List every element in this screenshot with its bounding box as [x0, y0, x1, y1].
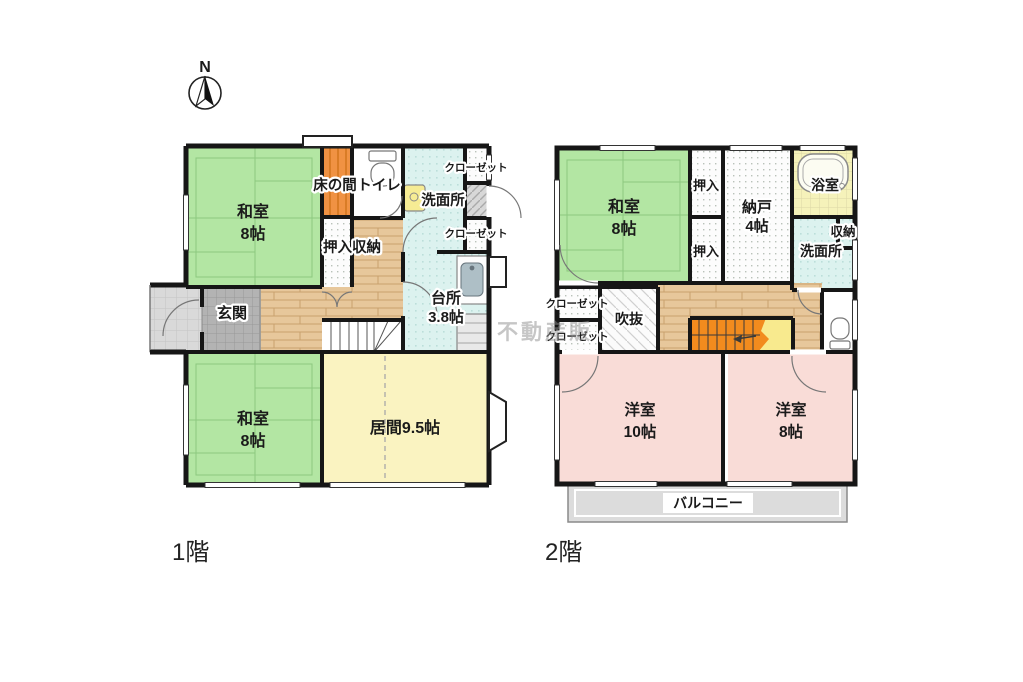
- caption-floor1: 1階: [172, 539, 209, 566]
- compass-icon: N: [189, 59, 221, 109]
- label-senmenjo-1f: 洗面所: [421, 191, 465, 209]
- label-toilet-1f: トイレ: [357, 178, 401, 194]
- label-shuno: 収納: [830, 224, 855, 239]
- floorplan-image: 和室 8帖 床の間 トイレ 洗面所 クローゼット クローゼット 押入収納 玄関 …: [0, 0, 1023, 682]
- label-balcony: バルコニー: [673, 495, 743, 511]
- label-closet-1f-mid: クローゼット: [445, 227, 508, 240]
- label-kitchen: 台所: [431, 289, 461, 307]
- compass-north-label: N: [199, 59, 211, 76]
- label-tokonoma: 床の間: [313, 176, 357, 194]
- label-yoshitsu-10: 洋室: [624, 400, 655, 419]
- label-yoshitsu-10-size: 10帖: [624, 422, 657, 441]
- label-washitsu-1f-top: 和室: [237, 202, 269, 221]
- watermark: 不動産販: [497, 320, 593, 344]
- living-bay-window: [489, 392, 506, 451]
- room-living: [322, 352, 489, 485]
- label-oshiire-1f: 押入収納: [323, 238, 381, 256]
- label-yoshitsu-8: 洋室: [775, 400, 806, 419]
- label-kitchen-size: 3.8帖: [428, 308, 464, 326]
- label-closet-2f-top: クローゼット: [546, 297, 609, 310]
- label-nando-size: 4帖: [745, 217, 768, 235]
- label-oshiire-2f-bottom: 押入: [693, 244, 719, 259]
- label-closet-1f-top: クローゼット: [445, 161, 508, 174]
- kitchen-sink: [457, 256, 488, 304]
- entrance-porch: [150, 287, 202, 352]
- toilet-fixture-2f: [830, 318, 850, 349]
- label-living: 居間9.5帖: [370, 418, 440, 437]
- label-senmenjo-2f: 洗面所: [800, 243, 842, 259]
- label-yoshitsu-8-size: 8帖: [779, 422, 804, 441]
- label-fukinuke: 吹抜: [615, 311, 644, 327]
- label-nando: 納戸: [742, 198, 772, 216]
- label-bathroom: 浴室: [811, 177, 839, 193]
- stairs-2f: [690, 318, 793, 352]
- bay-window-top: [303, 136, 352, 147]
- label-washitsu-2f: 和室: [608, 197, 640, 216]
- label-washitsu-1f-bottom-size: 8帖: [241, 431, 266, 450]
- stairs-1f: [322, 320, 403, 352]
- label-washitsu-1f-top-size: 8帖: [241, 224, 266, 243]
- label-washitsu-2f-size: 8帖: [612, 219, 637, 238]
- kitchen-bay: [489, 257, 506, 287]
- label-washitsu-1f-bottom: 和室: [237, 409, 269, 428]
- floorplan-svg: 和室 8帖 床の間 トイレ 洗面所 クローゼット クローゼット 押入収納 玄関 …: [0, 0, 1023, 682]
- floorplan-1f: 和室 8帖 床の間 トイレ 洗面所 クローゼット クローゼット 押入収納 玄関 …: [150, 136, 521, 488]
- caption-floor2: 2階: [545, 539, 582, 566]
- label-genkan: 玄関: [217, 304, 247, 322]
- shaft-1f: [465, 183, 489, 218]
- label-oshiire-2f-top: 押入: [693, 178, 719, 193]
